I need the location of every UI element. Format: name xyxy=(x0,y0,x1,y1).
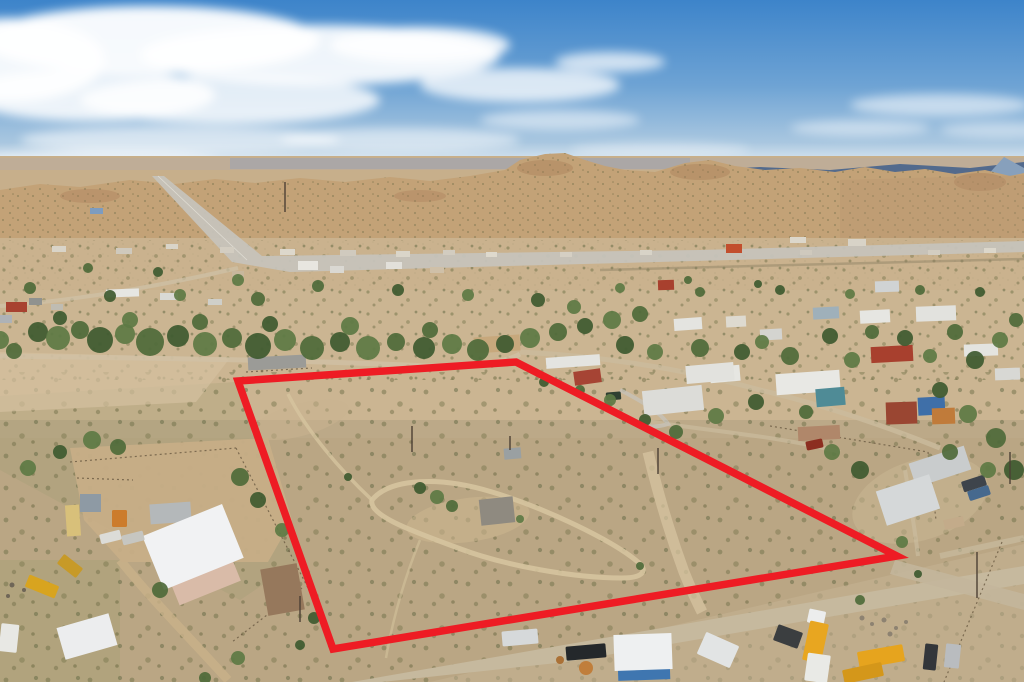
building-roof xyxy=(386,262,402,269)
debris xyxy=(882,618,887,623)
cloud xyxy=(480,110,640,130)
tree xyxy=(824,444,840,460)
tree xyxy=(579,661,593,675)
tree xyxy=(822,328,838,344)
vehicle xyxy=(804,653,831,682)
tree xyxy=(932,382,948,398)
building-roof xyxy=(995,368,1020,381)
tree xyxy=(262,316,278,332)
tree xyxy=(855,595,865,605)
tree xyxy=(422,322,438,338)
building-roof xyxy=(815,387,845,407)
tree xyxy=(104,290,116,302)
tree xyxy=(28,322,48,342)
tree xyxy=(430,490,444,504)
cloud xyxy=(330,27,510,63)
building-roof xyxy=(674,317,703,331)
tree xyxy=(695,287,705,297)
cloud xyxy=(790,120,930,136)
tree xyxy=(167,325,189,347)
building-roof xyxy=(430,267,444,273)
tree xyxy=(467,339,489,361)
tree xyxy=(392,284,404,296)
tree xyxy=(516,515,524,523)
tree xyxy=(897,330,913,346)
building-roof xyxy=(116,248,132,254)
rock-outcrop xyxy=(60,189,120,203)
tree xyxy=(616,336,634,354)
tree xyxy=(300,336,324,360)
tree xyxy=(251,292,265,306)
building-roof xyxy=(658,280,674,291)
tree xyxy=(708,408,724,424)
tree xyxy=(193,332,217,356)
building-roof xyxy=(166,244,178,249)
tree xyxy=(153,267,163,277)
building-roof xyxy=(726,244,742,253)
tree xyxy=(567,300,581,314)
building-roof xyxy=(640,250,652,255)
tree xyxy=(549,323,567,341)
building-roof xyxy=(800,250,812,255)
tree xyxy=(136,328,164,356)
tree xyxy=(462,289,474,301)
tree xyxy=(192,314,208,330)
building-roof xyxy=(298,261,318,270)
building-roof xyxy=(798,425,841,441)
building-roof xyxy=(860,309,891,324)
building-roof xyxy=(80,494,101,512)
building-roof xyxy=(871,345,914,363)
tree xyxy=(24,282,36,294)
tree xyxy=(446,500,458,512)
building-roof xyxy=(790,237,806,243)
building-roof xyxy=(848,239,866,246)
tree xyxy=(923,349,937,363)
tree xyxy=(914,570,922,578)
tree xyxy=(245,333,271,359)
building-roof xyxy=(886,401,918,424)
tree xyxy=(947,324,963,340)
tree xyxy=(330,332,350,352)
aerial-photo: Aerial drone photograph of a high-desert… xyxy=(0,0,1024,682)
tree xyxy=(387,333,405,351)
tree xyxy=(295,640,305,650)
tree xyxy=(442,334,462,354)
tree xyxy=(851,461,869,479)
building-roof xyxy=(330,266,344,273)
tree xyxy=(413,337,435,359)
building-roof xyxy=(928,250,940,255)
building-roof xyxy=(29,298,42,305)
debris xyxy=(894,626,898,630)
tree xyxy=(556,656,564,664)
building-roof xyxy=(479,496,516,525)
tree xyxy=(312,280,324,292)
debris xyxy=(22,588,26,592)
tree xyxy=(356,336,380,360)
tree xyxy=(748,394,764,410)
vehicle xyxy=(112,510,127,527)
tree xyxy=(414,482,426,494)
tree xyxy=(691,339,709,357)
tree xyxy=(53,445,67,459)
building-roof xyxy=(486,252,497,257)
building-roof xyxy=(916,305,956,321)
tree xyxy=(647,344,663,360)
vehicle xyxy=(0,623,19,653)
building-roof xyxy=(340,250,356,256)
debris xyxy=(6,594,10,598)
tree xyxy=(734,344,750,360)
tree xyxy=(83,431,101,449)
tree xyxy=(274,329,296,351)
building-roof xyxy=(65,505,81,537)
building-roof xyxy=(813,306,840,319)
building-roof xyxy=(726,315,747,327)
building-roof xyxy=(90,208,103,214)
vehicle xyxy=(944,643,961,668)
tree xyxy=(110,439,126,455)
tree xyxy=(684,276,692,284)
cloud xyxy=(850,94,1024,116)
rock-outcrop xyxy=(517,160,573,176)
tree xyxy=(231,468,249,486)
tree xyxy=(87,327,113,353)
tree xyxy=(632,306,648,322)
tree xyxy=(53,311,67,325)
vehicle xyxy=(923,643,939,670)
building-roof xyxy=(280,249,295,255)
tree xyxy=(966,351,984,369)
tree xyxy=(603,311,621,329)
debris xyxy=(860,616,865,621)
tree xyxy=(250,492,266,508)
far-blue-mesa xyxy=(230,158,690,169)
tree xyxy=(1009,313,1023,327)
tree xyxy=(615,283,625,293)
tree xyxy=(942,444,958,460)
rock-outcrop xyxy=(394,190,446,202)
tree xyxy=(122,312,138,328)
building-roof xyxy=(984,248,996,253)
tree xyxy=(531,293,545,307)
tree xyxy=(520,328,540,348)
tree xyxy=(992,332,1008,348)
tree xyxy=(799,405,813,419)
rock-outcrop xyxy=(670,164,730,180)
tree xyxy=(1004,460,1024,480)
building-roof xyxy=(6,302,27,312)
building-roof xyxy=(932,408,956,425)
vehicle xyxy=(501,628,538,646)
tree xyxy=(844,352,860,368)
tree xyxy=(83,263,93,273)
building-roof xyxy=(220,247,234,253)
debris xyxy=(888,632,893,637)
tree xyxy=(986,428,1006,448)
tree xyxy=(865,325,879,339)
building-roof xyxy=(0,315,12,323)
tree xyxy=(174,289,186,301)
building-roof xyxy=(208,299,222,305)
debris xyxy=(904,620,908,624)
debris xyxy=(10,583,15,588)
debris xyxy=(870,622,874,626)
tree xyxy=(231,651,245,665)
tree xyxy=(232,274,244,286)
tree xyxy=(896,536,908,548)
cloud xyxy=(420,68,620,102)
tree xyxy=(975,287,985,297)
tree xyxy=(344,473,352,481)
building-roof xyxy=(52,246,66,252)
building-roof xyxy=(51,304,63,310)
tree xyxy=(222,328,242,348)
tree xyxy=(636,562,644,570)
building-roof xyxy=(560,252,572,257)
building-roof xyxy=(613,633,672,671)
tree xyxy=(754,280,762,288)
tree xyxy=(20,460,36,476)
tree xyxy=(6,343,22,359)
tree xyxy=(71,321,89,339)
tree xyxy=(577,318,593,334)
tree xyxy=(980,462,996,478)
building-roof xyxy=(504,447,522,459)
building-roof xyxy=(443,250,455,255)
cloud xyxy=(80,76,380,124)
aerial-photo-stage: Aerial drone photograph of a high-desert… xyxy=(0,0,1024,682)
tree xyxy=(46,326,70,350)
tree xyxy=(755,335,769,349)
building-roof xyxy=(875,281,899,293)
building-roof xyxy=(396,251,410,257)
tree xyxy=(341,317,359,335)
tree xyxy=(496,335,514,353)
tree xyxy=(775,285,785,295)
tree xyxy=(845,289,855,299)
tree xyxy=(915,285,925,295)
tree xyxy=(959,405,977,423)
cloud xyxy=(555,52,665,72)
tree xyxy=(781,347,799,365)
tree xyxy=(152,582,168,598)
